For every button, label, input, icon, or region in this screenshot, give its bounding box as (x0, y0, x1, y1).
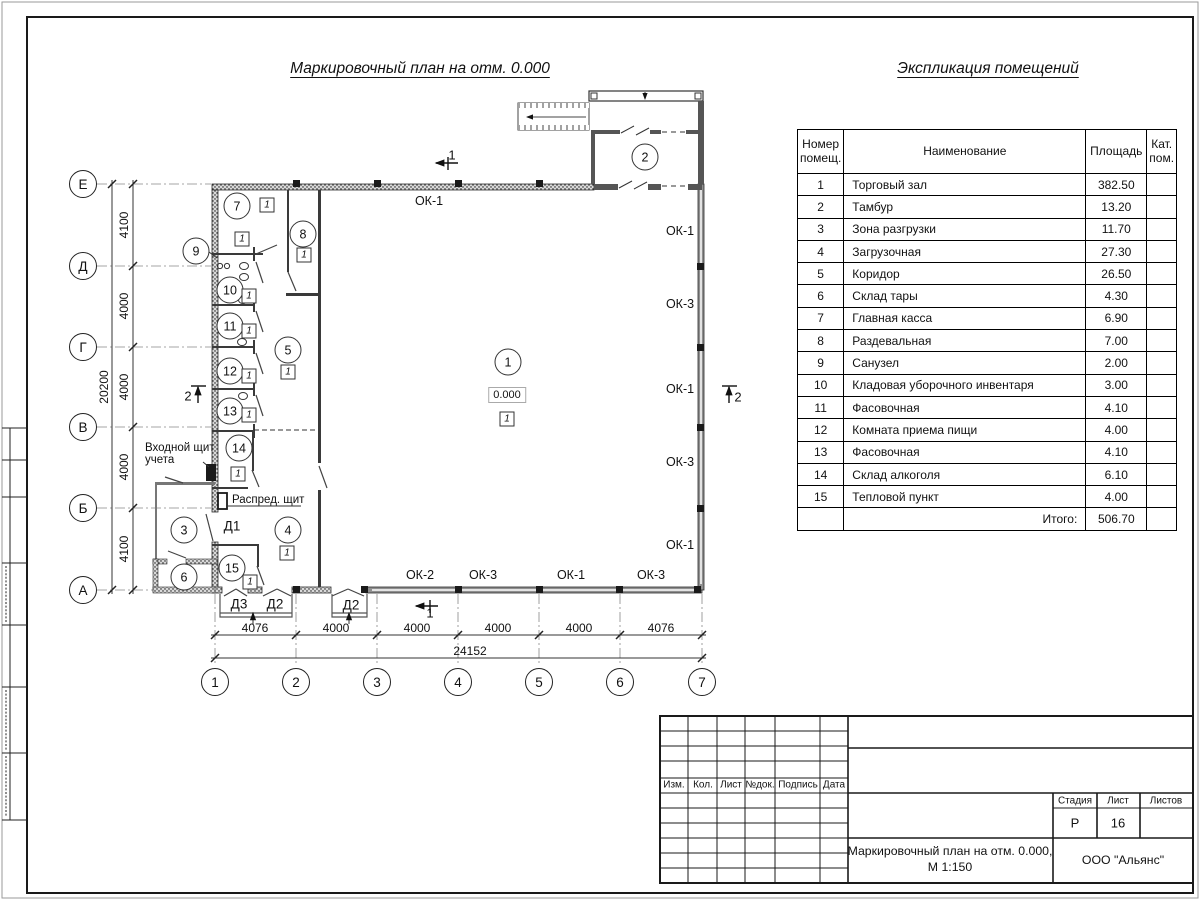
revision-header: Кол. (693, 780, 713, 791)
axis-marker: 7 (688, 668, 716, 696)
table-header-row: Номер помещ.НаименованиеПлощадьКат. пом. (798, 130, 1177, 174)
table-row: 12Комната приема пищи4.00 (798, 419, 1177, 441)
table-cell: Фасовочная (844, 396, 1086, 418)
annotation-label: Входной щит (145, 442, 215, 454)
floor-type-marker: 1 (243, 575, 258, 590)
table-cell (1147, 419, 1177, 441)
doc-title-line1: Маркировочный план на отм. 0.000, (848, 844, 1053, 858)
table-cell: 382.50 (1086, 174, 1147, 196)
table-cell: 26.50 (1086, 263, 1147, 285)
table-cell (1147, 463, 1177, 485)
dimension-label: 4000 (404, 621, 431, 635)
room-number: 4 (275, 517, 302, 544)
axis-marker: 5 (525, 668, 553, 696)
room-number: 11 (217, 313, 244, 340)
axis-marker: 4 (444, 668, 472, 696)
table-cell: 3.00 (1086, 374, 1147, 396)
door-label: Д2 (343, 598, 360, 613)
floor-type-marker: 1 (242, 324, 257, 339)
window-label: ОК-1 (666, 224, 694, 238)
table-cell: Комната приема пищи (844, 419, 1086, 441)
table-row: 8Раздевальная7.00 (798, 330, 1177, 352)
table-row: 3Зона разгрузки11.70 (798, 218, 1177, 240)
floor-type-marker: 1 (242, 408, 257, 423)
table-cell (1147, 263, 1177, 285)
floor-type-marker: 1 (281, 365, 296, 380)
room-number: 14 (226, 435, 253, 462)
section-label: 2 (734, 390, 741, 405)
table-cell: 3 (798, 218, 844, 240)
table-row: 10Кладовая уборочного инвентаря3.00 (798, 374, 1177, 396)
window-label: ОК-1 (557, 568, 585, 582)
dimension-label-vertical: 4000 (117, 454, 131, 481)
table-cell: 4 (798, 240, 844, 262)
distribution-panel (218, 493, 227, 509)
door-swings (165, 245, 364, 596)
room-number: 9 (183, 238, 210, 265)
door-label: Д2 (267, 597, 284, 612)
floor-type-marker: 1 (260, 198, 275, 213)
table-cell: 6.10 (1086, 463, 1147, 485)
entry-meter-panel (206, 464, 216, 481)
table-cell: Коридор (844, 263, 1086, 285)
revision-header: Лист (720, 780, 742, 791)
window-label: ОК-3 (637, 568, 665, 582)
table-cell: 9 (798, 352, 844, 374)
rooms-schedule-table: Номер помещ.НаименованиеПлощадьКат. пом.… (797, 129, 1177, 531)
table-cell: 11.70 (1086, 218, 1147, 240)
table-row: 1Торговый зал382.50 (798, 174, 1177, 196)
rooms-table-title: Экспликация помещений (897, 60, 1079, 78)
table-row: 7Главная касса6.90 (798, 307, 1177, 329)
stage-value: Р (1071, 816, 1080, 831)
room-number: 15 (219, 555, 246, 582)
section-label: 1 (448, 148, 455, 163)
stage-label: Стадия (1058, 796, 1092, 807)
room-number: 10 (217, 277, 244, 304)
loading-ramp (518, 103, 589, 130)
table-cell: Тепловой пункт (844, 486, 1086, 508)
table-cell: Санузел (844, 352, 1086, 374)
floor-type-marker: 1 (297, 248, 312, 263)
axis-marker: 1 (201, 668, 229, 696)
sheet-label: Лист (1107, 796, 1129, 807)
revision-header: Подпись (778, 780, 818, 791)
table-cell: 4.10 (1086, 396, 1147, 418)
table-cell: Зона разгрузки (844, 218, 1086, 240)
sheets-label: Листов (1150, 796, 1183, 807)
table-cell: 13.20 (1086, 196, 1147, 218)
table-cell: 8 (798, 330, 844, 352)
table-cell: 10 (798, 374, 844, 396)
table-total-row: Итого:506.70 (798, 508, 1177, 530)
table-cell: 1 (798, 174, 844, 196)
room-number: 5 (275, 337, 302, 364)
revision-header: Дата (823, 780, 845, 791)
floor-type-marker: 1 (280, 546, 295, 561)
section-label: 2 (184, 389, 191, 404)
table-row: 5Коридор26.50 (798, 263, 1177, 285)
table-cell: Кладовая уборочного инвентаря (844, 374, 1086, 396)
table-cell: 13 (798, 441, 844, 463)
table-cell (1147, 307, 1177, 329)
table-cell: Главная касса (844, 307, 1086, 329)
column-header: Наименование (844, 130, 1086, 174)
table-cell: 12 (798, 419, 844, 441)
table-row: 2Тамбур13.20 (798, 196, 1177, 218)
dimension-label-vertical: 4100 (117, 212, 131, 239)
dimension-label: 4076 (242, 621, 269, 635)
table-row: 14Склад алкоголя6.10 (798, 463, 1177, 485)
table-cell: 7 (798, 307, 844, 329)
dimension-label-vertical: 4100 (117, 536, 131, 563)
revision-header: №док. (745, 780, 774, 791)
table-cell: 14 (798, 463, 844, 485)
table-row: 9Санузел2.00 (798, 352, 1177, 374)
table-cell: 4.10 (1086, 441, 1147, 463)
tambour (589, 91, 704, 190)
table-cell: 4.30 (1086, 285, 1147, 307)
dimension-label: 4000 (323, 621, 350, 635)
section-label: 1 (426, 606, 433, 621)
revision-header: Изм. (663, 780, 684, 791)
window-label: ОК-2 (406, 568, 434, 582)
column-header: Площадь (1086, 130, 1147, 174)
window-label: ОК-3 (666, 455, 694, 469)
annotation-label: Распред. щит (232, 494, 304, 506)
column-header: Кат. пом. (1147, 130, 1177, 174)
window-label: ОК-3 (469, 568, 497, 582)
elevation-mark: 0.000 (488, 387, 526, 403)
table-cell: 2.00 (1086, 352, 1147, 374)
table-cell: Склад алкоголя (844, 463, 1086, 485)
table-cell: Итого: (844, 508, 1086, 530)
table-cell (1147, 196, 1177, 218)
room-number: 2 (632, 144, 659, 171)
table-cell (1147, 240, 1177, 262)
table-row: 15Тепловой пункт4.00 (798, 486, 1177, 508)
window-label: ОК-3 (666, 297, 694, 311)
door-label: Д1 (224, 519, 241, 534)
table-cell (1147, 218, 1177, 240)
dimension-label-vertical: 20200 (97, 370, 111, 403)
axis-marker: Д (69, 252, 97, 280)
floor-type-marker: 1 (242, 369, 257, 384)
table-cell: 6 (798, 285, 844, 307)
dimension-label: 4076 (648, 621, 675, 635)
table-cell: 4.00 (1086, 419, 1147, 441)
table-cell (1147, 174, 1177, 196)
doc-title-line2: М 1:150 (928, 860, 972, 874)
room-number: 1 (495, 349, 522, 376)
table-row: 13Фасовочная4.10 (798, 441, 1177, 463)
axis-marker: 6 (606, 668, 634, 696)
axis-marker: Б (69, 494, 97, 522)
left-margin-table (2, 428, 27, 820)
table-cell: Раздевальная (844, 330, 1086, 352)
floor-type-marker: 1 (235, 232, 250, 247)
table-cell: 15 (798, 486, 844, 508)
room-number: 8 (290, 221, 317, 248)
table-cell (1147, 374, 1177, 396)
room-number: 7 (224, 193, 251, 220)
table-cell: 2 (798, 196, 844, 218)
table-cell: 5 (798, 263, 844, 285)
table-cell (1147, 486, 1177, 508)
dimension-label: 24152 (453, 644, 486, 658)
table-row: 4Загрузочная27.30 (798, 240, 1177, 262)
table-cell: 11 (798, 396, 844, 418)
axis-marker: 2 (282, 668, 310, 696)
room-number: 12 (217, 358, 244, 385)
table-cell: Загрузочная (844, 240, 1086, 262)
window-label: ОК-1 (415, 194, 443, 208)
section-marks (191, 157, 737, 613)
sheet-value: 16 (1111, 816, 1125, 831)
door-label: Д3 (231, 597, 248, 612)
axis-marker: В (69, 413, 97, 441)
table-cell: 27.30 (1086, 240, 1147, 262)
table-cell (1147, 396, 1177, 418)
column-header: Номер помещ. (798, 130, 844, 174)
table-cell (1147, 330, 1177, 352)
table-row: 11Фасовочная4.10 (798, 396, 1177, 418)
room-number: 6 (171, 564, 198, 591)
window-label: ОК-1 (666, 538, 694, 552)
blueprint-page: Маркировочный план на отм. 0.000 Эксплик… (0, 0, 1200, 900)
table-row: 6Склад тары4.30 (798, 285, 1177, 307)
table-cell (1147, 352, 1177, 374)
table-cell (1147, 508, 1177, 530)
dimension-label: 4000 (566, 621, 593, 635)
dimension-label-vertical: 4000 (117, 374, 131, 401)
table-cell (1147, 285, 1177, 307)
table-cell: 506.70 (1086, 508, 1147, 530)
table-cell: Фасовочная (844, 441, 1086, 463)
company-name: ООО "Альянс" (1082, 853, 1164, 867)
table-cell: Тамбур (844, 196, 1086, 218)
room-number: 13 (217, 398, 244, 425)
window-label: ОК-1 (666, 382, 694, 396)
floor-type-marker: 1 (500, 412, 515, 427)
table-cell (798, 508, 844, 530)
dimension-label-vertical: 4000 (117, 293, 131, 320)
room-number: 3 (171, 517, 198, 544)
table-cell: 6.90 (1086, 307, 1147, 329)
axis-marker: А (69, 576, 97, 604)
table-cell: 7.00 (1086, 330, 1147, 352)
table-cell: Торговый зал (844, 174, 1086, 196)
annotation-label: учета (145, 454, 174, 466)
table-cell: 4.00 (1086, 486, 1147, 508)
axis-marker: 3 (363, 668, 391, 696)
plan-title: Маркировочный план на отм. 0.000 (290, 60, 550, 78)
table-cell: Склад тары (844, 285, 1086, 307)
dimension-label: 4000 (485, 621, 512, 635)
table-cell (1147, 441, 1177, 463)
floor-type-marker: 1 (242, 289, 257, 304)
floor-type-marker: 1 (231, 467, 246, 482)
axis-marker: Е (69, 170, 97, 198)
axis-marker: Г (69, 333, 97, 361)
